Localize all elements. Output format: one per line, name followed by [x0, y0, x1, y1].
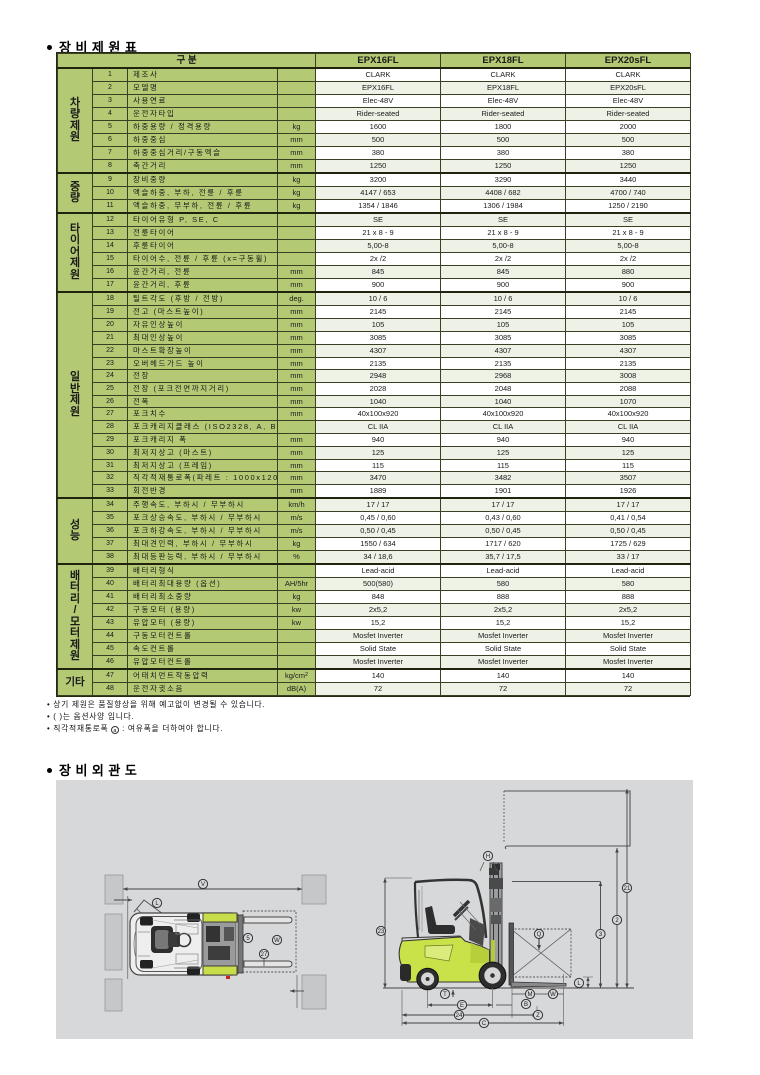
- svg-text:E: E: [460, 1003, 464, 1009]
- svg-text:B: B: [524, 1002, 528, 1008]
- svg-text:Q: Q: [537, 932, 542, 938]
- svg-text:V: V: [201, 882, 205, 888]
- svg-text:24: 24: [456, 1013, 463, 1019]
- svg-text:W: W: [550, 992, 556, 998]
- svg-text:H: H: [486, 854, 490, 860]
- svg-text:T: T: [443, 992, 447, 998]
- svg-text:C: C: [482, 1021, 487, 1027]
- svg-text:27: 27: [261, 952, 268, 958]
- svg-text:23: 23: [378, 929, 385, 935]
- svg-text:W: W: [274, 938, 280, 944]
- svg-text:M: M: [528, 992, 533, 998]
- svg-text:21: 21: [624, 886, 631, 892]
- svg-text:Z: Z: [536, 1013, 540, 1019]
